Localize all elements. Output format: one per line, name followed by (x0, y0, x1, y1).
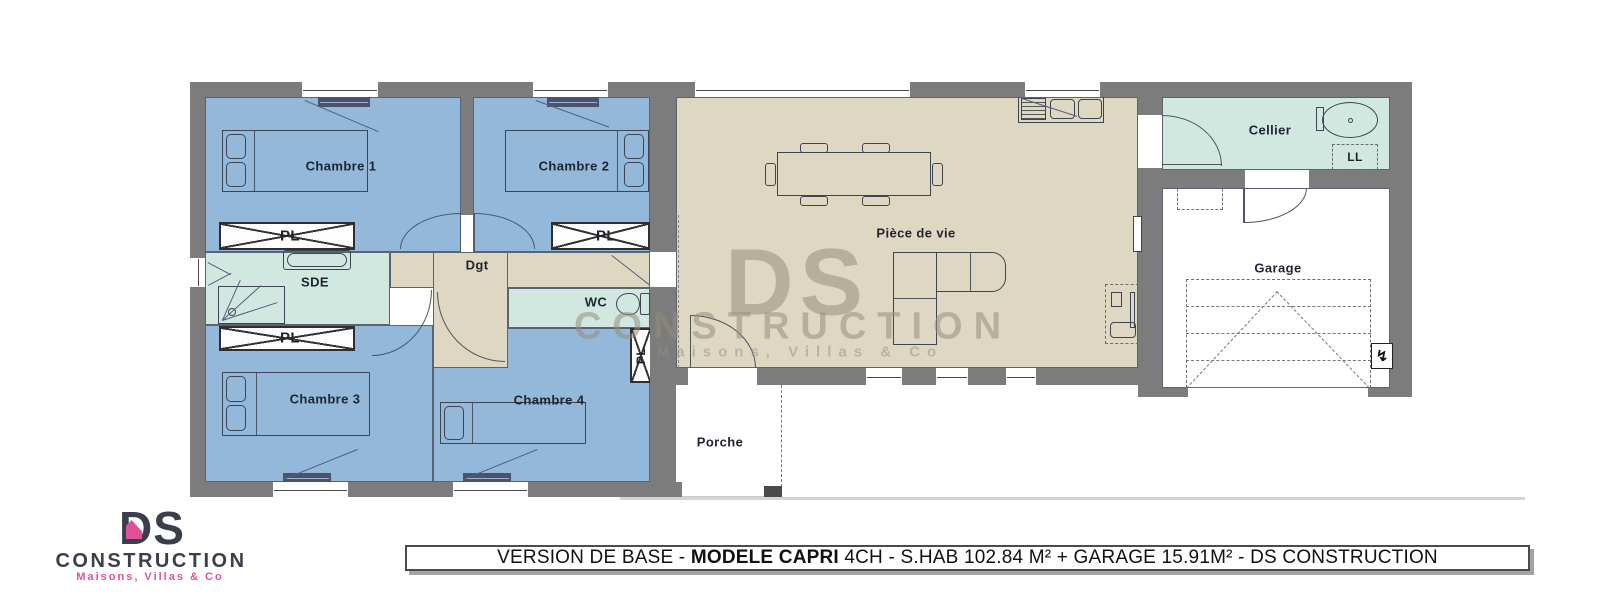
wall-chambre-divider (461, 97, 473, 215)
banner-text-bold: MODELE CAPRI (691, 547, 839, 569)
dining-chair-right (932, 163, 943, 186)
wall-right (1390, 82, 1412, 397)
wall-mid-vertical (650, 97, 676, 385)
electrical-panel: ↯ (1371, 343, 1393, 369)
wall-garage-bottom-left (1162, 388, 1188, 397)
shutter-box-chambre1 (318, 97, 370, 107)
dining-chair-top-2 (862, 143, 890, 153)
sofa-cushion-line-2 (970, 253, 971, 291)
door-leaf-garage (1243, 188, 1245, 223)
bed-line-chambre3 (256, 373, 257, 435)
label-porche: Porche (697, 435, 743, 450)
cellier-garage-door-opening (1245, 170, 1309, 188)
label-chambre4: Chambre 4 (514, 393, 585, 408)
bed-line-chambre4 (472, 403, 473, 443)
label-pl-chambre1: PL (280, 228, 300, 245)
desk-chair (1110, 322, 1136, 338)
garage-line-2 (1186, 333, 1371, 334)
window-chambre3 (273, 482, 348, 497)
pillow-chambre3-a (226, 376, 246, 402)
logo-tagline-text: Maisons, Villas & Co (76, 571, 223, 583)
label-chambre2: Chambre 2 (539, 159, 610, 174)
dining-chair-bottom-2 (862, 196, 890, 206)
window-chambre1 (302, 82, 378, 97)
room-dgt-horizontal (390, 252, 650, 288)
label-wc: WC (585, 295, 607, 310)
floor-plan-page: ↯ Chambre 1 Chambre 2 Chambre 3 Chambre … (0, 0, 1600, 600)
shutter-box-chambre2 (547, 97, 599, 107)
pillow-chambre4 (444, 406, 464, 440)
label-pl-chambre3: PL (280, 330, 300, 347)
shower-drain (228, 308, 236, 316)
logo-construction-text: CONSTRUCTION (55, 550, 246, 573)
banner-text-part1: VERSION DE BASE - (497, 547, 691, 569)
window-living-south-3 (1006, 368, 1036, 385)
door-leaf-front-entrance (690, 315, 691, 368)
label-garage: Garage (1254, 261, 1301, 276)
window-chambre2 (533, 82, 608, 97)
water-heater-bracket (1316, 107, 1324, 131)
sofa-horizontal-section (936, 252, 1006, 292)
dining-table (777, 152, 931, 196)
toilet-tank (640, 293, 650, 315)
pillow-chambre1-a (226, 134, 246, 159)
pillow-chambre1-b (226, 162, 246, 187)
door-leaf-chambre2 (474, 213, 475, 252)
electrical-panel-icon: ↯ (1376, 347, 1389, 365)
sofa-cushion-line-1 (894, 298, 936, 299)
window-sde (190, 258, 205, 287)
dgt-living-door-opening (650, 252, 676, 287)
label-chambre1: Chambre 1 (306, 159, 377, 174)
dining-chair-top-1 (800, 143, 828, 153)
door-leaf-chambre1 (460, 213, 461, 252)
window-kitchen (1025, 82, 1100, 97)
window-chambre4 (453, 482, 528, 497)
entry-zone-dashed-line (678, 215, 679, 368)
window-living-south-1 (866, 368, 902, 385)
label-piece-de-vie: Pièce de vie (876, 226, 955, 241)
porch-post (764, 486, 782, 497)
bed-line-chambre1 (254, 131, 255, 191)
dining-chair-left (765, 163, 776, 186)
label-pl-chambre4: PL (634, 348, 648, 364)
pillow-chambre2-a (624, 134, 644, 159)
window-living-bay (695, 82, 910, 97)
wall-porch-left (650, 385, 676, 497)
title-banner: VERSION DE BASE - MODELE CAPRI 4CH - S.H… (405, 545, 1530, 571)
front-door-opening (688, 368, 757, 385)
bed-line-chambre2 (617, 131, 618, 191)
tv-unit (1133, 216, 1142, 252)
terrace-shadow-line (620, 497, 1525, 500)
bathtub-inner (287, 253, 347, 267)
dining-chair-bottom-1 (800, 196, 828, 206)
door-leaf-cellier (1162, 164, 1222, 165)
desk-computer (1111, 292, 1122, 307)
wall-bedroom-wing-bottom (190, 482, 682, 497)
pillow-chambre2-b (624, 162, 644, 187)
kitchen-sink-right (1078, 99, 1102, 119)
label-dgt: Dgt (466, 258, 489, 273)
window-living-south-2 (936, 368, 968, 385)
pillow-chambre3-b (226, 405, 246, 431)
label-chambre3: Chambre 3 (290, 392, 361, 407)
water-heater-dot (1348, 118, 1353, 123)
label-cellier: Cellier (1249, 123, 1292, 138)
banner-text-part2: 4CH - S.HAB 102.84 M² + GARAGE 15.91M² -… (839, 547, 1438, 569)
toilet-bowl (616, 293, 640, 315)
label-pl-chambre2: PL (596, 228, 616, 245)
wall-left (190, 82, 205, 497)
wall-garage-bottom-right (1368, 388, 1392, 397)
label-sde: SDE (301, 275, 329, 290)
cellier-door-opening (1138, 115, 1162, 168)
garage-line-1 (1186, 306, 1371, 307)
label-ll: LL (1347, 150, 1362, 164)
